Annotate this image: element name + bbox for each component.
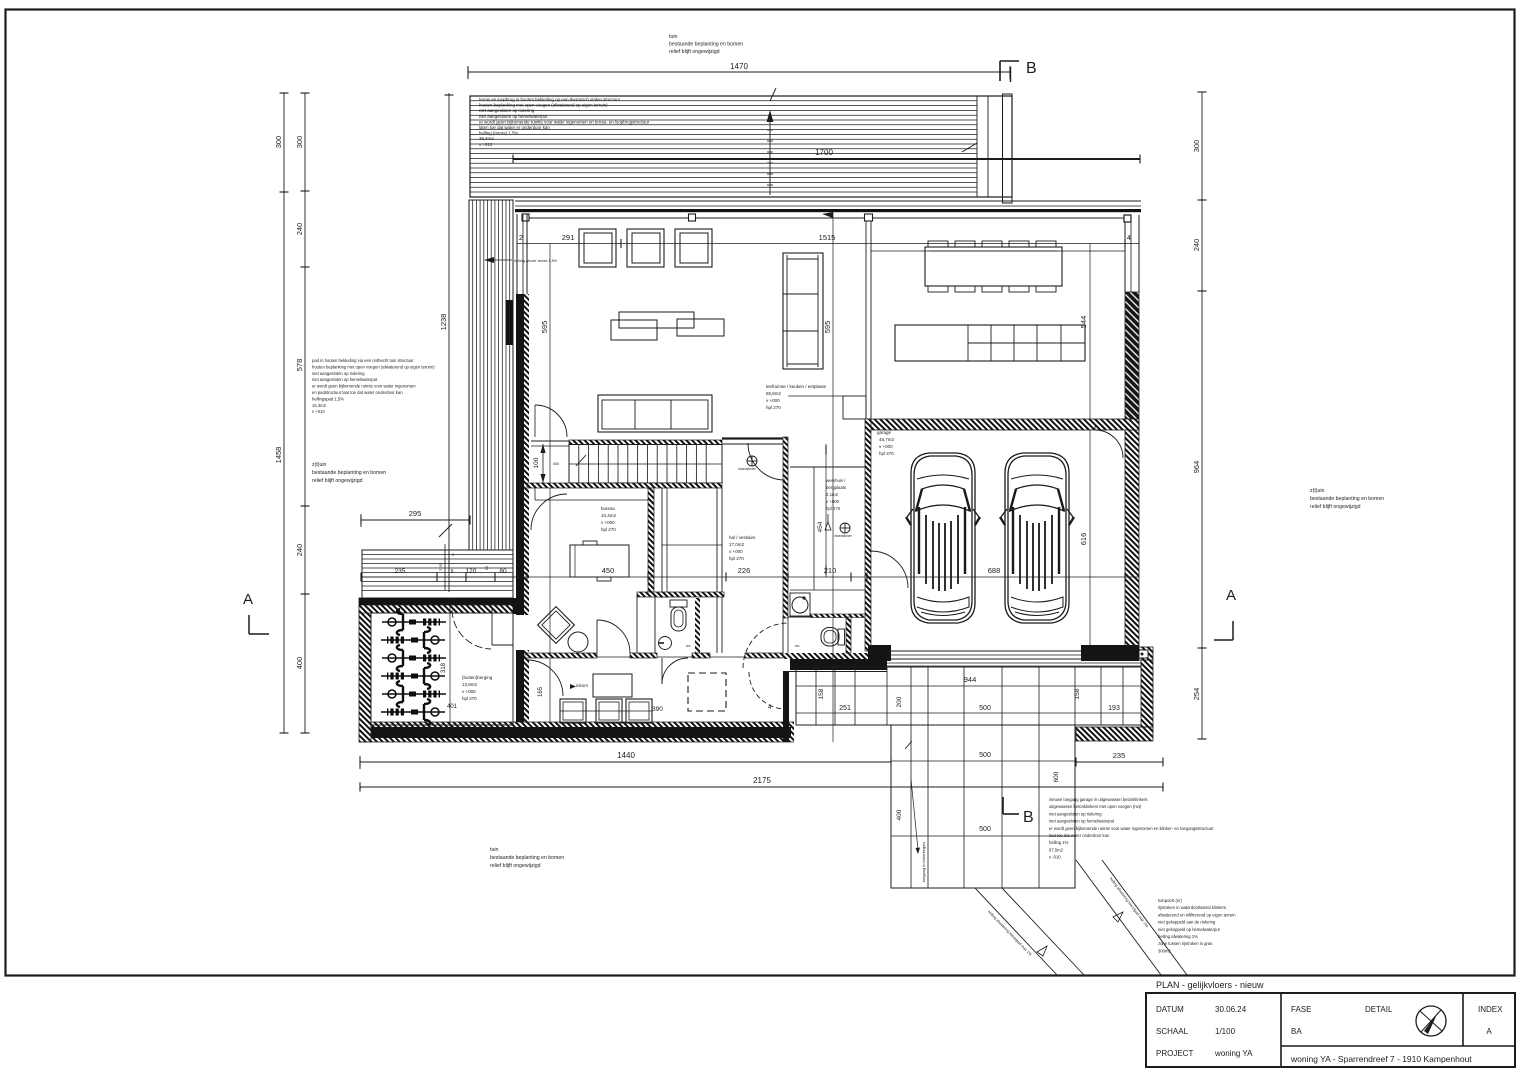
svg-text:BA: BA	[1291, 1027, 1302, 1036]
svg-text:45,7m2: 45,7m2	[879, 437, 895, 442]
svg-text:houten beplanking met open voe: houten beplanking met open voegen (afwat…	[479, 103, 608, 108]
svg-text:688: 688	[988, 566, 1001, 575]
svg-text:15,3m2: 15,3m2	[312, 403, 327, 408]
svg-text:bestaande beplanting en bomen: bestaande beplanting en bomen	[669, 42, 743, 48]
svg-text:hal / vestiaire: hal / vestiaire	[729, 535, 756, 540]
svg-text:4: 4	[1127, 233, 1131, 242]
svg-text:niet aangesloten op riolering: niet aangesloten op riolering	[312, 371, 365, 376]
svg-text:1458: 1458	[274, 447, 283, 464]
svg-text:bureau: bureau	[601, 506, 616, 511]
svg-text:en padstructuur laat toe dat w: en padstructuur laat toe dat water onder…	[312, 390, 403, 395]
svg-text:bergplaats: bergplaats	[826, 485, 846, 490]
svg-text:niet aangesloten op riolering: niet aangesloten op riolering	[479, 108, 535, 113]
svg-text:pad in houten bekleding via ee: pad in houten bekleding via een onthecht…	[312, 358, 414, 363]
svg-text:v +000: v +000	[462, 689, 476, 694]
svg-text:er wordt geen bijkomende ruimt: er wordt geen bijkomende ruimte voor wat…	[1049, 826, 1214, 831]
svg-text:318: 318	[441, 662, 447, 673]
svg-text:werkhuis /: werkhuis /	[826, 478, 846, 483]
svg-text:10,4m2: 10,4m2	[601, 513, 617, 518]
svg-text:616: 616	[1079, 533, 1088, 546]
svg-text:hpl 270: hpl 270	[826, 506, 841, 511]
svg-text:2,1m2: 2,1m2	[826, 492, 839, 497]
svg-text:(buiten)berging: (buiten)berging	[462, 675, 493, 680]
svg-text:944: 944	[964, 675, 977, 684]
svg-text:hpl 270: hpl 270	[879, 451, 894, 456]
svg-text:2,35: 2,35	[438, 562, 443, 571]
svg-text:laat toe dat water onderdoor k: laat toe dat water onderdoor kan	[1049, 833, 1110, 838]
svg-text:niet gekoppeld aan de riolerin: niet gekoppeld aan de riolering	[1158, 920, 1216, 925]
svg-text:240: 240	[295, 544, 304, 557]
svg-text:niet aangesloten op hemelwater: niet aangesloten op hemelwaterput	[479, 114, 548, 119]
svg-text:390: 390	[652, 706, 663, 713]
svg-text:terras en loopbrug in houten b: terras en loopbrug in houten bekleding o…	[479, 97, 621, 102]
svg-text:v +010: v +010	[479, 142, 493, 147]
svg-text:PLAN - gelijkvloers - nieuw: PLAN - gelijkvloers - nieuw	[1156, 980, 1264, 990]
svg-text:300: 300	[274, 136, 283, 149]
svg-text:SCHAAL: SCHAAL	[1156, 1027, 1189, 1036]
svg-text:158: 158	[1074, 688, 1081, 699]
svg-text:vloerafvoer: vloerafvoer	[738, 467, 757, 471]
svg-text:1440: 1440	[617, 751, 635, 760]
svg-text:450: 450	[602, 566, 615, 575]
svg-text:12: 12	[484, 565, 489, 570]
svg-text:400: 400	[295, 657, 304, 670]
svg-text:235: 235	[1113, 751, 1126, 760]
svg-text:v -010: v -010	[1049, 855, 1061, 860]
svg-text:helling 1%: helling 1%	[1049, 840, 1069, 845]
svg-text:97,5m2: 97,5m2	[1049, 847, 1064, 852]
svg-text:uitgewassen betonklinkers met: uitgewassen betonklinkers met open voege…	[1049, 804, 1142, 809]
svg-text:B: B	[1026, 60, 1037, 77]
svg-text:2: 2	[519, 233, 523, 242]
svg-text:DETAIL: DETAIL	[1365, 1005, 1393, 1014]
svg-text:17,0m2: 17,0m2	[729, 542, 745, 547]
svg-text:240: 240	[1192, 239, 1201, 252]
svg-text:hpl 270: hpl 270	[729, 556, 744, 561]
svg-text:226: 226	[738, 566, 751, 575]
svg-text:2: 2	[519, 568, 523, 575]
svg-text:578: 578	[295, 359, 304, 372]
svg-text:tuin: tuin	[669, 34, 677, 40]
svg-text:13,9m2: 13,9m2	[462, 682, 478, 687]
svg-text:1700: 1700	[815, 148, 833, 157]
svg-text:600: 600	[1053, 771, 1060, 782]
svg-text:193: 193	[1108, 705, 1120, 712]
svg-text:v +000: v +000	[601, 520, 615, 525]
svg-text:afwaterend en infiltrerend op: afwaterend en infiltrerend op eigen terr…	[1158, 912, 1236, 917]
svg-text:295: 295	[409, 509, 422, 518]
svg-text:vloerafvoer: vloerafvoer	[834, 534, 853, 538]
svg-text:595: 595	[540, 321, 549, 334]
svg-text:DATUM: DATUM	[1156, 1005, 1184, 1014]
svg-text:z(t)uin: z(t)uin	[1310, 488, 1325, 494]
svg-text:niet aangesloten op hemelwater: niet aangesloten op hemelwaterput	[312, 377, 378, 382]
svg-text:relief blijft ongewijzigd: relief blijft ongewijzigd	[669, 49, 720, 55]
svg-text:1238: 1238	[439, 314, 448, 331]
svg-text:niet aangesloten op riolering: niet aangesloten op riolering	[1049, 811, 1102, 816]
svg-text:toegang in betontegels: toegang in betontegels	[921, 842, 926, 882]
svg-text:hpl 270: hpl 270	[601, 527, 616, 532]
svg-text:251: 251	[839, 705, 851, 712]
svg-text:rijstroken in waterdoorlatend: rijstroken in waterdoorlatend klinkers	[1158, 905, 1226, 910]
svg-text:hpl 270: hpl 270	[766, 405, 781, 410]
svg-text:254: 254	[1192, 688, 1201, 701]
svg-text:wc: wc	[686, 644, 691, 648]
svg-text:PROJECT: PROJECT	[1156, 1049, 1193, 1058]
svg-text:A: A	[1486, 1027, 1492, 1036]
svg-text:235: 235	[395, 568, 406, 575]
svg-text:595: 595	[823, 321, 832, 334]
svg-text:niet gekoppeld op hemelwaterpu: niet gekoppeld op hemelwaterput	[1158, 927, 1221, 932]
svg-text:9: 9	[451, 569, 454, 575]
svg-text:240: 240	[295, 223, 304, 236]
svg-text:wc: wc	[795, 644, 800, 648]
svg-text:500: 500	[979, 752, 991, 759]
svg-text:165: 165	[538, 686, 544, 697]
svg-text:tuin: tuin	[490, 847, 498, 853]
svg-text:210: 210	[824, 566, 837, 575]
svg-text:544: 544	[1079, 316, 1088, 329]
svg-text:inkom: inkom	[576, 683, 588, 688]
svg-text:55,8m2: 55,8m2	[766, 391, 782, 396]
svg-text:401: 401	[447, 704, 458, 710]
svg-text:relief blijft ongewijzigd: relief blijft ongewijzigd	[490, 863, 541, 869]
svg-text:zone tussen rijstroken is gras: zone tussen rijstroken is gras	[1158, 941, 1212, 946]
svg-text:v +000: v +000	[879, 444, 893, 449]
svg-text:500: 500	[979, 705, 991, 712]
svg-text:er wordt geen bijkomende ruimt: er wordt geen bijkomende ruimte voor wat…	[312, 384, 416, 389]
svg-text:relief blijft ongewijzigd: relief blijft ongewijzigd	[312, 478, 363, 484]
svg-text:80: 80	[499, 568, 507, 575]
svg-text:bestaande beplanting en bomen: bestaande beplanting en bomen	[312, 470, 386, 476]
svg-text:v +010: v +010	[312, 409, 325, 414]
svg-text:120: 120	[466, 568, 477, 575]
svg-text:300: 300	[1192, 140, 1201, 153]
svg-text:helling afwatering 1%: helling afwatering 1%	[1158, 934, 1198, 939]
svg-text:2175: 2175	[753, 776, 771, 785]
svg-text:hellingspad 1,5%: hellingspad 1,5%	[312, 396, 344, 401]
svg-text:060: 060	[553, 462, 559, 466]
svg-text:100: 100	[533, 457, 540, 468]
svg-text:A: A	[243, 591, 253, 608]
svg-text:houten beplanking met open voe: houten beplanking met open voegen (afwat…	[312, 364, 435, 369]
svg-text:laten toe dat water er onderdo: laten toe dat water er onderdoor kan	[479, 125, 550, 130]
svg-text:300: 300	[295, 136, 304, 149]
svg-text:hpl 270: hpl 270	[462, 696, 477, 701]
svg-text:bestaande beplanting en bomen: bestaande beplanting en bomen	[490, 855, 564, 861]
svg-text:1/100: 1/100	[1215, 1027, 1236, 1036]
svg-text:z(t)uin: z(t)uin	[312, 462, 327, 468]
svg-text:helling (terras) 1,5%: helling (terras) 1,5%	[479, 131, 518, 136]
svg-text:leefruimte / keuken / eetplaat: leefruimte / keuken / eetplaats	[766, 384, 827, 389]
svg-text:291: 291	[562, 233, 575, 242]
svg-text:200: 200	[896, 696, 903, 707]
svg-text:relief blijft ongewijzigd: relief blijft ongewijzigd	[1310, 504, 1361, 510]
svg-text:v +000: v +000	[729, 549, 743, 554]
svg-text:tuinpoort (nr): tuinpoort (nr)	[1158, 898, 1183, 903]
svg-text:nieuwe toegang garage in uitge: nieuwe toegang garage in uitgewassen bet…	[1049, 797, 1147, 802]
svg-text:niet aangesloten op hemelwater: niet aangesloten op hemelwaterput	[1049, 819, 1115, 824]
svg-text:v +000: v +000	[826, 499, 840, 504]
svg-text:helling afvoer terras 1,5%: helling afvoer terras 1,5%	[514, 259, 558, 263]
svg-text:1470: 1470	[730, 62, 748, 71]
svg-text:garage: garage	[877, 430, 892, 435]
svg-text:woning YA - Sparrendreef 7 - 1: woning YA - Sparrendreef 7 - 1910 Kampen…	[1290, 1054, 1472, 1064]
svg-text:v +000: v +000	[766, 398, 780, 403]
svg-text:FASE: FASE	[1291, 1005, 1311, 1014]
svg-text:300m2: 300m2	[1158, 948, 1171, 953]
svg-text:400: 400	[896, 809, 903, 820]
svg-text:964: 964	[1192, 461, 1201, 474]
svg-text:INDEX: INDEX	[1478, 1005, 1503, 1014]
svg-text:B: B	[1023, 809, 1034, 826]
svg-text:er wordt geen bijkomende ruimt: er wordt geen bijkomende ruimte voor wat…	[479, 119, 650, 124]
svg-text:454: 454	[817, 521, 824, 532]
svg-text:158: 158	[818, 688, 825, 699]
svg-text:500: 500	[979, 826, 991, 833]
svg-text:bestaande beplanting en bomen: bestaande beplanting en bomen	[1310, 496, 1384, 502]
svg-text:woning YA: woning YA	[1214, 1049, 1253, 1058]
svg-text:36,4m2: 36,4m2	[479, 136, 494, 141]
svg-text:A: A	[1226, 587, 1236, 604]
svg-text:30.06.24: 30.06.24	[1215, 1005, 1247, 1014]
